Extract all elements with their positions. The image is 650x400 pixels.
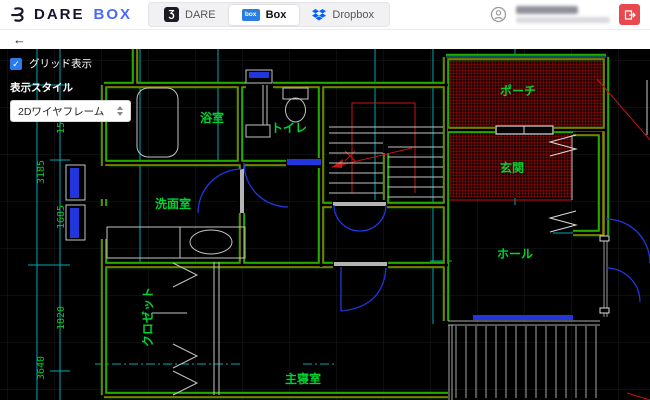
box-tab-icon: box	[242, 9, 260, 21]
room-label-entrance: 玄関	[500, 160, 524, 175]
source-tabs: Ʒ DARE box Box Dropbox	[148, 2, 390, 27]
grid-checkbox-label: グリッド表示	[29, 56, 92, 71]
room-label-master-bedroom: 主寝室	[285, 371, 321, 386]
room-label-closet: クロゼット	[140, 287, 155, 347]
tab-box-label: Box	[266, 9, 287, 21]
dare-logo-icon	[10, 5, 29, 24]
dim-1820: 1820	[56, 306, 67, 330]
tab-dare-label: DARE	[185, 9, 216, 21]
display-style-select[interactable]: 2Dワイヤフレーム	[10, 100, 131, 122]
dare-tab-icon: Ʒ	[164, 7, 179, 22]
app-logo: DARE BOX	[10, 5, 132, 24]
cad-viewport: ✓ グリッド表示 表示スタイル 2Dワイヤフレーム	[0, 49, 650, 400]
user-email-blur	[516, 17, 610, 23]
brand-suffix: BOX	[94, 6, 133, 23]
logout-button[interactable]	[619, 4, 640, 25]
view-controls: ✓ グリッド表示 表示スタイル 2Dワイヤフレーム	[10, 56, 131, 122]
tab-dare[interactable]: Ʒ DARE	[151, 5, 229, 25]
sub-toolbar: ←	[0, 30, 650, 49]
dropbox-icon	[312, 9, 326, 21]
back-button[interactable]: ←	[13, 33, 26, 46]
room-label-bath: 浴室	[200, 110, 224, 125]
tab-box[interactable]: box Box	[229, 5, 300, 25]
user-icon	[490, 6, 507, 23]
room-label-toilet: トイレ	[271, 121, 307, 135]
dim-3185: 3185	[36, 160, 47, 184]
tab-dropbox-label: Dropbox	[332, 9, 374, 21]
grid-checkbox[interactable]: ✓	[10, 58, 22, 70]
brand-name: DARE	[34, 6, 85, 23]
user-name-redacted	[516, 6, 610, 23]
logout-icon	[624, 9, 636, 21]
topbar: DARE BOX Ʒ DARE box Box Dropbox	[0, 0, 650, 30]
topbar-right	[490, 4, 640, 25]
style-label: 表示スタイル	[10, 80, 131, 95]
dim-3640: 3640	[36, 356, 47, 380]
room-label-washroom: 洗面室	[155, 196, 191, 211]
tab-dropbox[interactable]: Dropbox	[299, 5, 387, 25]
display-style-value: 2Dワイヤフレーム	[18, 104, 104, 119]
room-label-porch: ポーチ	[500, 83, 536, 98]
dim-1685: 1685	[56, 205, 67, 229]
room-label-hall: ホール	[497, 247, 533, 261]
user-name-blur	[516, 6, 578, 14]
select-chevrons-icon	[117, 106, 123, 116]
